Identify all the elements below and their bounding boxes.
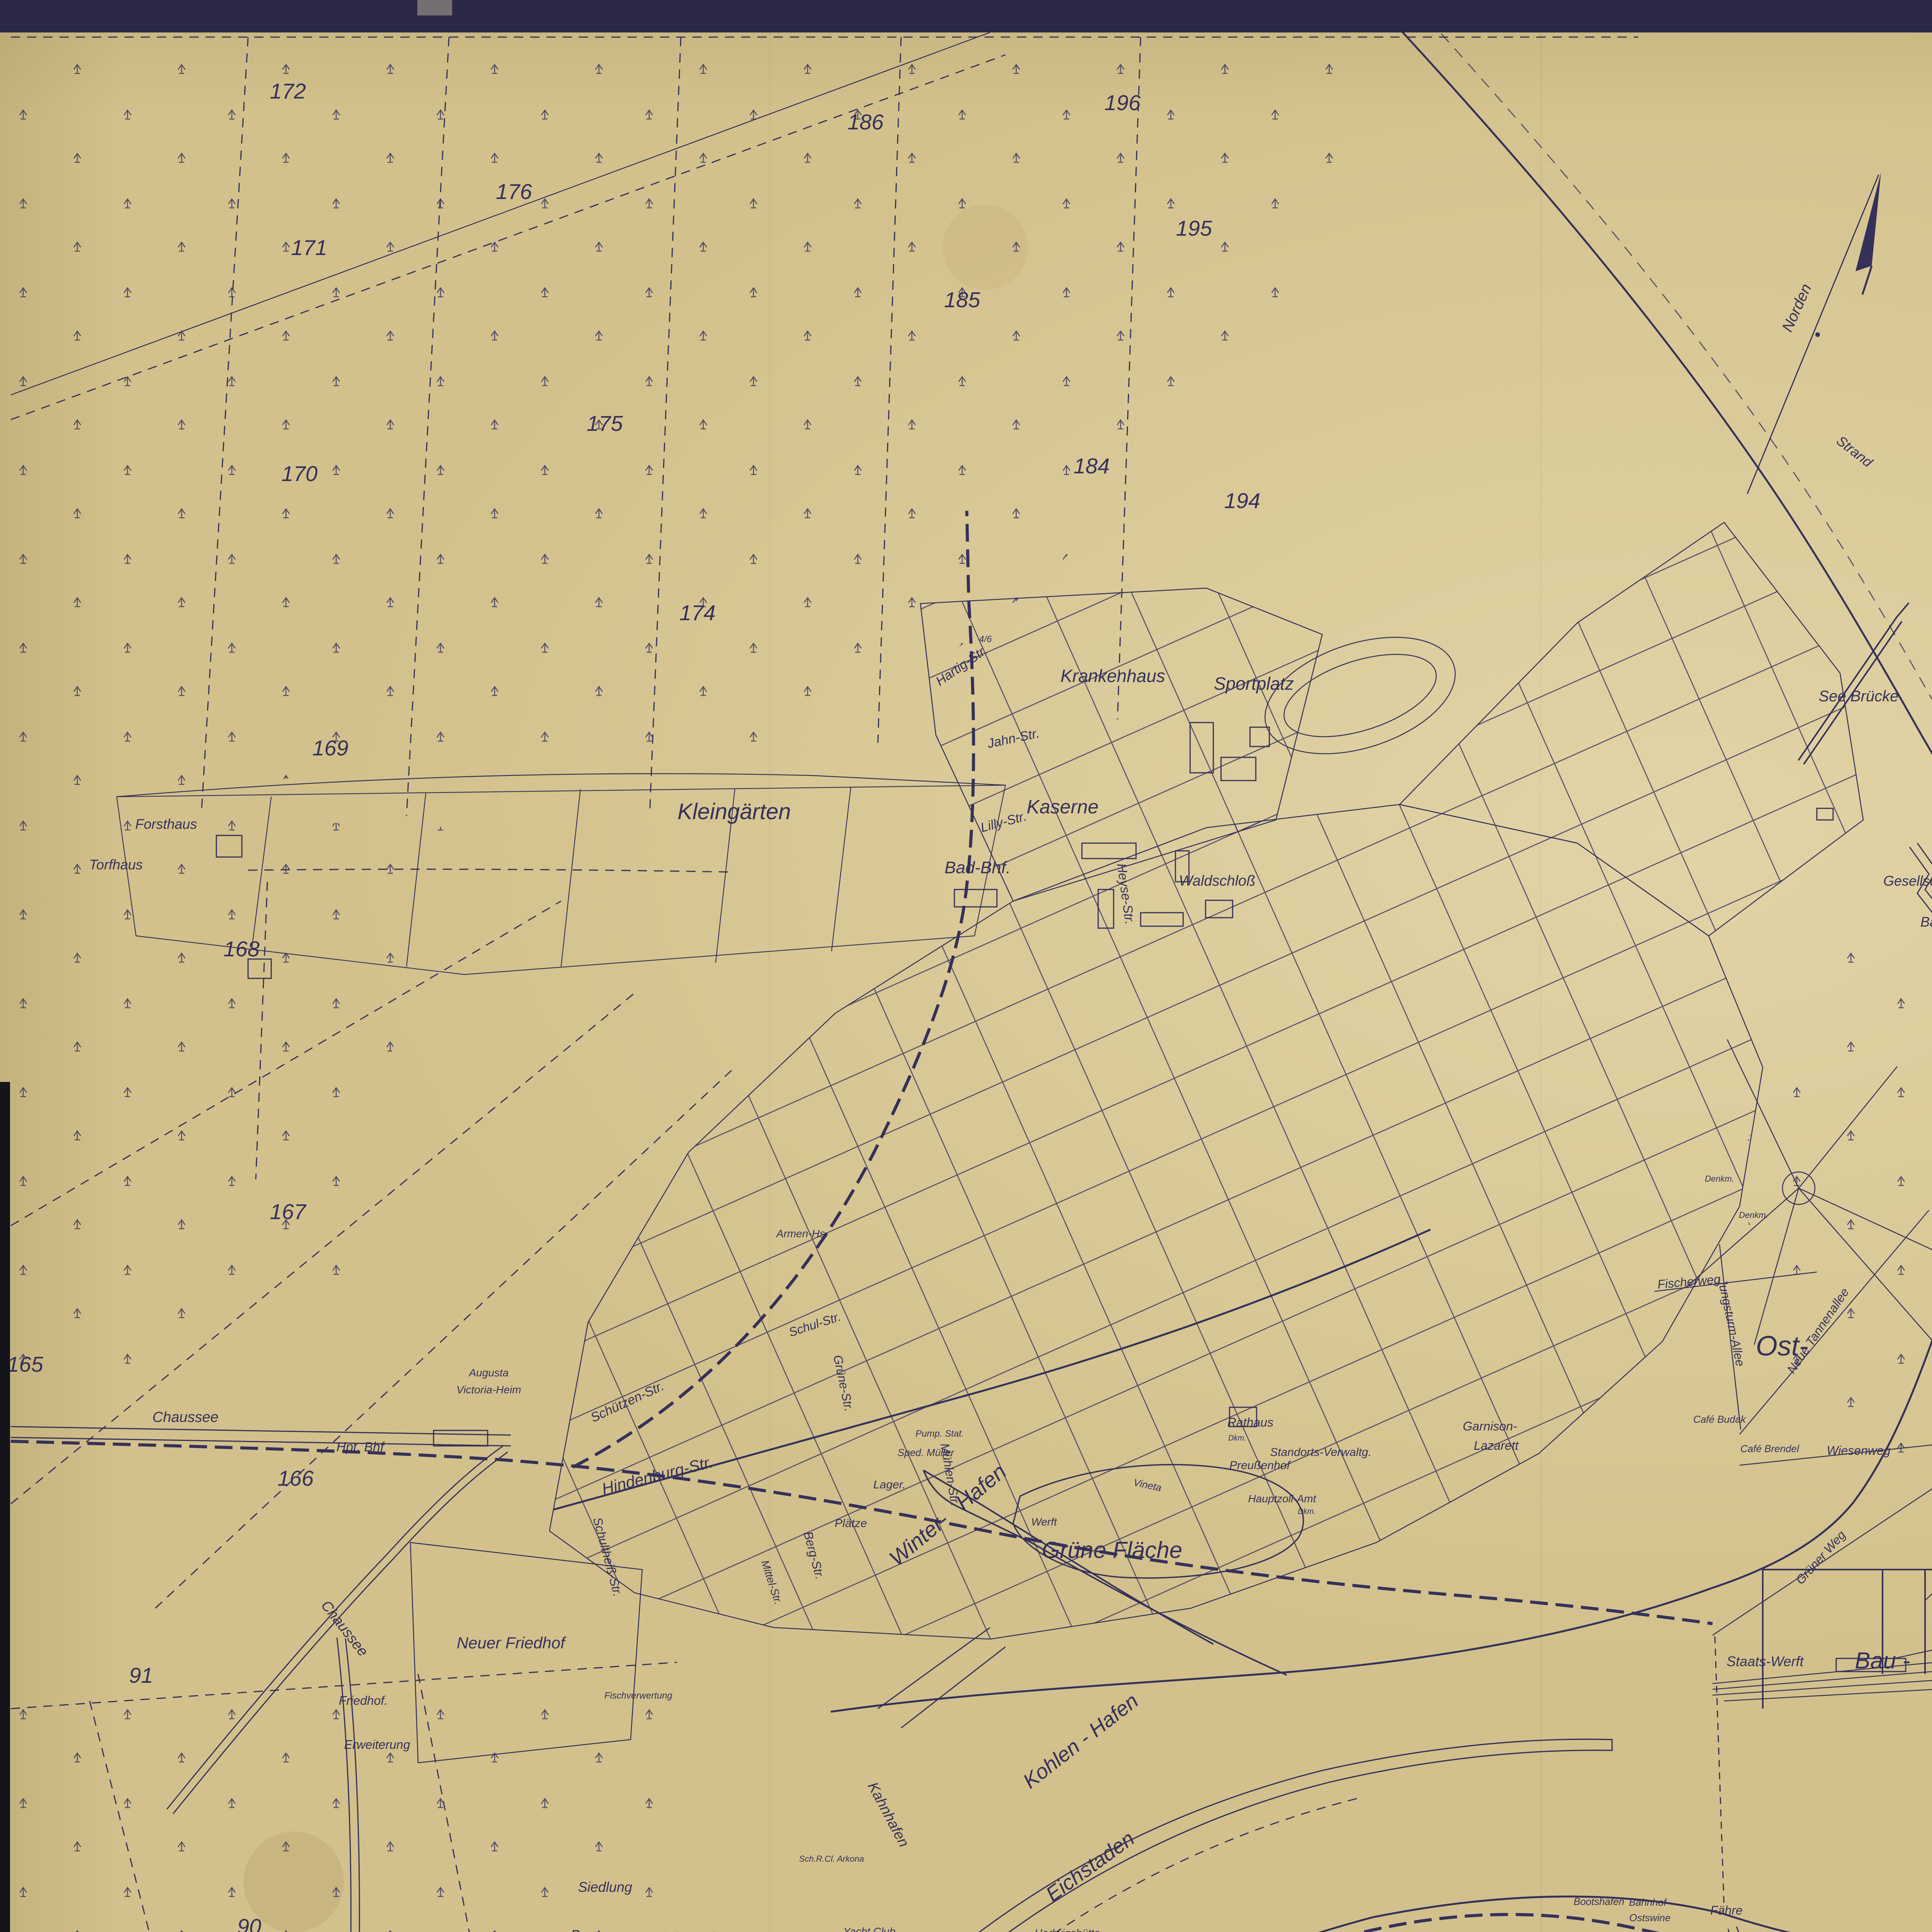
map-label: Grüne Fläche [1042,1537,1182,1563]
map-label: Werft [1031,1516,1058,1528]
map-label: See Brücke [1819,688,1899,705]
map-label: Café Budak [1693,1413,1747,1425]
map-label: Lager. [873,1478,906,1491]
map-label: 185 [944,287,980,312]
north-arrow [1747,172,1881,494]
map-label: Forsthaus [135,816,197,832]
map-label: Neuer Friedhof [457,1634,566,1652]
map-label: Strand [1833,432,1876,470]
map-label: 176 [496,179,532,204]
map-label: 194 [1224,488,1260,513]
map-label: Pump. Stat. [915,1429,964,1439]
map-label: Rathaus [1227,1415,1273,1429]
map-label: 175 [587,411,623,435]
map-label: Wiesenweg [1827,1444,1890,1458]
map-label: Hpt. Bhf [337,1440,385,1454]
map-label: 90 [237,1914,261,1932]
map-label: Augusta [468,1367,509,1379]
map-label: 169 [312,736,348,760]
map-label: Denkm. [1739,1210,1768,1220]
map-label: Sped. Müller [898,1447,954,1458]
map-label: Pommern- [571,1927,636,1932]
map-label: Standorts-Verwaltg. [1270,1446,1371,1459]
map-label: Gesellschafts- [1883,873,1932,889]
map-label: Waldschloß [1179,873,1255,889]
map-label: Lazarett [1474,1439,1519,1452]
map-label: Eichstaden [1042,1827,1139,1906]
scanned-map-page: { "title_block": { "line1": "Uebersichts… [0,0,1932,1932]
map-label: Fähre [1710,1903,1743,1917]
map-label: Plätze [835,1517,867,1530]
map-label: Hauptzoll-Amt [1248,1493,1316,1505]
map-label: 168 [223,937,259,961]
map-label: Sch.R.Cl. Arkona [799,1854,864,1864]
map-label: 186 [847,110,884,134]
map-label: Ostswine [1629,1912,1671,1923]
map-label: Kaserne [1027,796,1099,818]
map-label: Kohlen - Hafen [1019,1689,1143,1793]
map-label: 171 [291,235,327,260]
map-label: Dkm. [1298,1507,1316,1516]
map-label: 91 [129,1663,153,1687]
map-label: Chaussee [152,1409,218,1425]
map-label: 172 [270,79,306,103]
map-label: Kahnhafen [864,1779,912,1850]
map-label: Jungsturm-Allee [1715,1277,1747,1368]
map-label: Sportplatz [1214,673,1294,694]
map-label: Torfhaus [89,857,143,872]
map-canvas: 1721761711861961951851751701841941741691… [0,0,1932,1932]
map-label: 174 [679,600,715,625]
map-label: 196 [1104,90,1141,115]
map-label: Armen-Hs. [776,1228,828,1240]
map-label: Café Brendel [1740,1443,1799,1454]
map-label: 170 [281,461,317,486]
map-label: Friedhof. [339,1694,388,1708]
map-label: Dkm. [1228,1434,1247,1442]
map-label: Kleingärten [677,799,791,824]
map-label: Krankenhaus [1060,666,1165,686]
map-label: Bad [1920,914,1932,930]
map-label: Grüner Weg [1793,1528,1848,1587]
map-label: Bahnhof [1629,1896,1668,1908]
map-label: Chaussee [318,1597,371,1660]
map-label: Yacht Club [844,1925,896,1932]
map-label: Erweiterung [344,1738,410,1752]
map-label: 195 [1176,216,1212,240]
map-label: Denkm. [1705,1174,1734,1184]
map-label: Bau - [1855,1648,1910,1673]
map-label: Bad-Bhf. [944,858,1010,877]
map-label: Norden [1779,281,1815,335]
map-label: Victoria-Heim [456,1384,521,1396]
map-label: 166 [277,1466,314,1490]
map-label: Preußenhof [1230,1459,1291,1472]
map-label: Bootshafen [1573,1896,1624,1907]
map-label: Staats-Werft [1726,1653,1804,1669]
map-label: Garnison- [1463,1419,1517,1433]
map-label: 184 [1073,454,1109,478]
map-label: Hedwigshütte [1034,1927,1100,1932]
map-label: 167 [270,1199,306,1224]
map-label: Siedlung [578,1879,632,1895]
map-label: Fischverwertung [604,1690,673,1701]
map-label: 165 [7,1352,43,1376]
map-label: Swinemünder [662,1930,724,1932]
